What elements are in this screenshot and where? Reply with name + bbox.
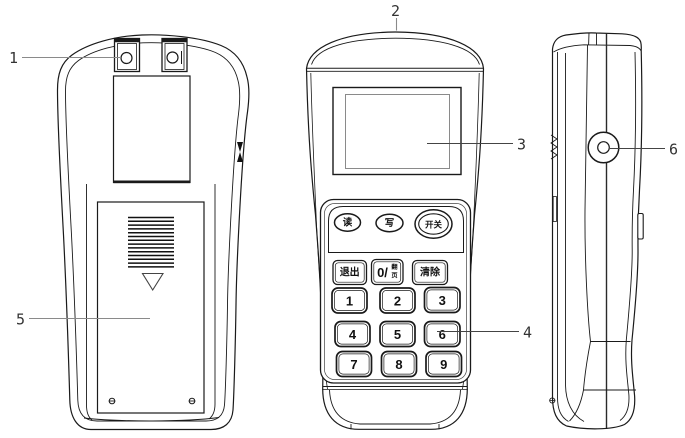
callout-2-label: 2 [391, 2, 400, 20]
key-digit-6-label: 6 [439, 327, 446, 342]
key-digit-2-label: 2 [394, 294, 401, 309]
front-view: 读 写 开关 退出 0/ 翻 页 清除 [307, 32, 484, 429]
callout-6-label: 6 [669, 141, 678, 159]
callout-5-label: 5 [16, 311, 25, 329]
top-clip-left [115, 39, 140, 72]
write-button-label: 写 [385, 218, 395, 229]
power-button-label: 开关 [425, 220, 443, 230]
callout-2: 2 [391, 2, 400, 31]
back-face-right-edge [209, 184, 215, 419]
key-digit-9-label: 9 [440, 357, 447, 372]
side-back-edge [567, 50, 642, 429]
top-clip-right [162, 39, 187, 72]
key-digit-1-label: 1 [346, 294, 353, 309]
side-button [638, 214, 643, 240]
key-digit-8-label: 8 [395, 357, 402, 372]
callout-4-label: 4 [523, 324, 532, 342]
read-button-label: 读 [343, 217, 353, 229]
back-face-left-edge [87, 184, 93, 420]
side-view [549, 33, 643, 429]
back-upper-panel [114, 76, 191, 183]
display-bezel [333, 88, 461, 175]
key-digit-7-label: 7 [350, 357, 357, 372]
side-front-edge [553, 49, 567, 426]
base-step-line [84, 418, 219, 421]
back-view [58, 35, 249, 430]
side-shell-line-1 [566, 53, 585, 422]
side-shell-line-2 [570, 45, 591, 421]
callout-1: 1 [9, 49, 121, 67]
strap-clip-icon [237, 142, 243, 162]
device-three-view-diagram: 读 写 开关 退出 0/ 翻 页 清除 [0, 0, 685, 438]
key-zero-top-label: 翻 [391, 263, 397, 271]
key-clear-label: 清除 [420, 266, 441, 279]
callout-1-label: 1 [9, 49, 18, 67]
key-zero-bottom-label: 页 [391, 272, 397, 280]
battery-cover [98, 202, 205, 413]
side-slot [553, 197, 556, 222]
diagram-canvas: 读 写 开关 退出 0/ 翻 页 清除 [0, 0, 685, 438]
bottom-inner-arc [330, 390, 461, 424]
connector-outer-ring [588, 132, 619, 163]
callout-6: 6 [610, 141, 678, 159]
connector-port [551, 132, 619, 163]
callout-3-label: 3 [517, 136, 526, 154]
side-back-edge-inner [620, 52, 636, 421]
key-digit-5-label: 5 [394, 327, 401, 342]
side-front-edge-inner [558, 52, 569, 422]
key-digit-4-label: 4 [349, 327, 357, 342]
key-digit-3-label: 3 [439, 293, 446, 308]
key-zero-main-label: 0/ [377, 265, 388, 280]
side-cap-seam [554, 45, 641, 52]
front-dome-inner [312, 38, 480, 64]
key-exit-label: 退出 [340, 266, 360, 279]
